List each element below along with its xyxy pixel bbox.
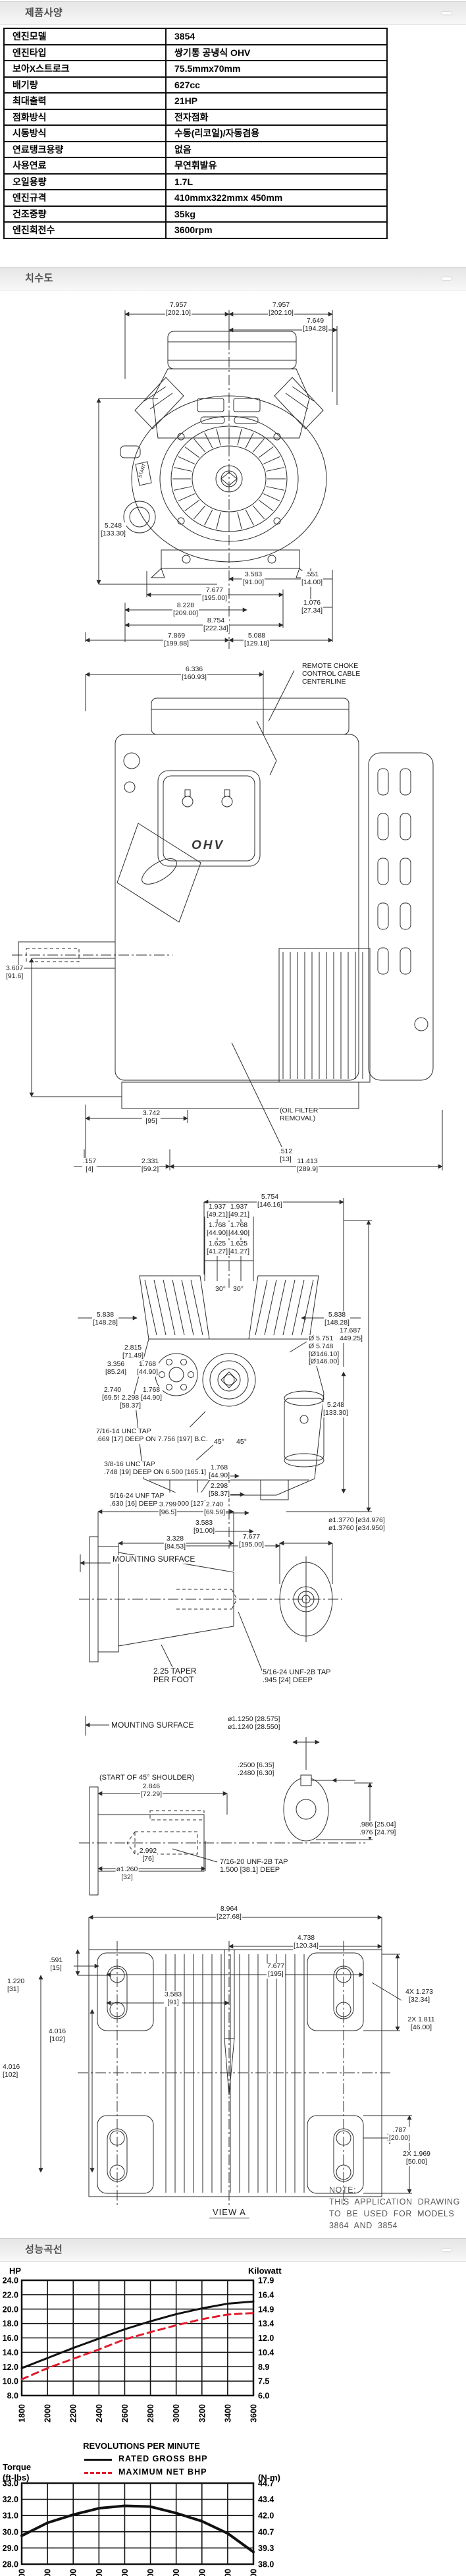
spec-row: 보아X스트로크75.5mmx70mm: [4, 61, 387, 77]
dimension-label: 8.964 [227.68]: [216, 1905, 242, 1921]
product-page: 제품사양 엔진모델3854엔진타입쌍기통 공냉식 OHV보아X스트로크75.5m…: [0, 0, 466, 2576]
dimension-label: 3.583 [91]: [164, 1991, 182, 2007]
spec-value: 35kg: [166, 206, 387, 223]
dimension-label: .591 [15]: [49, 1957, 63, 1973]
y2-axis-tick: 8.9: [258, 2363, 269, 2372]
y-axis-tick: 22.0: [3, 2290, 18, 2299]
dimension-label: 2.815 [71.49]: [122, 1344, 144, 1360]
dimension-label: 2X 1.969 [50.00]: [402, 2151, 431, 2166]
dimension-label: 17.687 [449.25]: [337, 1327, 363, 1343]
dimension-label: 4.016 [102]: [2, 2064, 20, 2079]
dimension-label: REMOTE CHOKE CONTROL CABLE CENTERLINE: [301, 663, 361, 686]
spec-row: 사용연료무연휘발유: [4, 157, 387, 174]
y2-axis-tick: 40.7: [258, 2527, 274, 2536]
y-axis-tick: 30.0: [3, 2527, 18, 2536]
dimension-label: 3.328 [84.53]: [164, 1535, 186, 1551]
section-title-specs: 제품사양: [25, 2, 63, 24]
x-axis-tick: 2600: [120, 2569, 130, 2576]
spec-row: 배기량627cc: [4, 77, 387, 94]
x-axis-tick: 3400: [223, 2404, 232, 2423]
dimension-label: .512 [13]: [278, 1148, 293, 1164]
y2-axis-tick: 42.0: [258, 2511, 274, 2521]
y2-axis-tick: 14.9: [258, 2305, 274, 2314]
x-axis-tick: 2000: [43, 2404, 53, 2423]
spec-row: 최대출력21HP: [4, 93, 387, 109]
dimension-label: 2.25 TAPER PER FOOT: [153, 1667, 197, 1685]
dimension-label: 3.356 [85.24]: [105, 1361, 127, 1377]
dimension-label: 7/16-20 UNF-2B TAP 1.500 [38.1] DEEP: [219, 1858, 289, 1875]
x-axis-tick: 3600: [249, 2404, 259, 2423]
dimension-label: 7.869 [199.88]: [163, 632, 190, 648]
y-axis-tick: 16.0: [3, 2334, 18, 2343]
spec-value: 무연휘발유: [166, 157, 387, 174]
y2-axis-tick: 17.9: [258, 2276, 274, 2286]
section-title-performance: 성능곡선: [25, 2239, 63, 2261]
torque-axis-unit: (ft-lbs): [3, 2473, 29, 2482]
y2-axis-tick: 6.0: [258, 2392, 269, 2401]
collapse-icon[interactable]: [442, 12, 452, 14]
y-axis-tick: 10.0: [3, 2377, 18, 2386]
dimension-drawing: 7.957 [202.10]7.957 [202.10]7.649 [194.2…: [0, 300, 466, 2236]
dimension-label: 8.754 [222.34]: [203, 617, 229, 633]
spec-row: 엔진규격410mmx322mmx 450mm: [4, 190, 387, 206]
legend-line-gross: [84, 2459, 112, 2461]
dimension-label: .157 [4]: [82, 1158, 97, 1174]
dimension-label: 7.677 [195]: [267, 1963, 285, 1979]
x-axis-tick: 3200: [197, 2569, 207, 2576]
legend-line-net: [84, 2472, 112, 2474]
spec-value: 627cc: [166, 77, 387, 94]
spec-label: 배기량: [4, 77, 166, 94]
spec-row: 건조중량35kg: [4, 206, 387, 223]
dimension-label: 7.649 [194.28]: [302, 317, 328, 333]
dimension-label: 1.625 [41.27]: [206, 1240, 228, 1256]
dimension-label: 5.248 [133.30]: [100, 522, 126, 538]
y-axis-tick: 20.0: [3, 2305, 18, 2314]
spec-label: 엔진회전수: [4, 222, 166, 238]
dimension-label: .986 [25.04] .976 [24.79]: [359, 1821, 396, 1837]
legend-label-net: MAXIMUM NET BHP: [118, 2467, 207, 2477]
spec-row: 연료탱크용량없음: [4, 142, 387, 158]
dimension-label: 7.957 [202.10]: [165, 302, 192, 317]
torque-axis-title: Torque: [3, 2462, 31, 2472]
spec-label: 엔진규격: [4, 190, 166, 206]
y-axis-tick: 12.0: [3, 2363, 18, 2372]
rpm-axis-label: REVOLUTIONS PER MINUTE: [69, 2441, 214, 2451]
y2-axis-tick: 39.3: [258, 2544, 274, 2553]
nm-axis-title: (N-m): [258, 2473, 280, 2482]
dimension-label: 7/16-14 UNC TAP .669 [17] DEEP ON 7.756 …: [95, 1428, 209, 1444]
x-axis-tick: 3000: [172, 2404, 181, 2423]
dimension-label: 1.768 [44.90]: [208, 1464, 230, 1480]
dimension-label: 1.076 [27.34]: [301, 599, 323, 615]
drawing-note: NOTE: THIS APPLICATION DRAWING TO BE USE…: [329, 2184, 460, 2232]
y2-axis-tick: 7.5: [258, 2377, 269, 2386]
x-axis-tick: 3200: [197, 2404, 207, 2423]
dimension-label: 2.992 [76]: [139, 1848, 157, 1863]
spec-label: 점화방식: [4, 109, 166, 126]
dimension-label: MOUNTING SURFACE: [111, 1721, 194, 1730]
dimension-label: 2.846 [72.29]: [140, 1783, 163, 1799]
spec-label: 연료탱크용량: [4, 142, 166, 158]
dimension-label: Ø 5.751 Ø 5.748 [Ø146.10] [Ø146.00]: [308, 1335, 340, 1366]
dimension-label: 3.742 [95]: [142, 1110, 161, 1126]
spec-value: 전자점화: [166, 109, 387, 126]
chart-1: 33.044.732.043.431.042.030.040.729.039.3…: [3, 2479, 274, 2576]
dimension-label: 5.838 [148.28]: [92, 1311, 118, 1327]
view-a-label: VIEW A: [209, 2207, 249, 2218]
dimension-label: 3.607 [91.6]: [5, 965, 24, 981]
dimension-label: .2500 [6.35] .2480 [6.30]: [237, 1762, 274, 1778]
dimension-label: (OIL FILTER REMOVAL): [279, 1107, 319, 1123]
spec-value: 쌍기통 공냉식 OHV: [166, 45, 387, 61]
dimension-label: 5.754 [146.16]: [257, 1193, 283, 1209]
spec-value: 3600rpm: [166, 222, 387, 238]
hp-axis-title: HP: [9, 2266, 21, 2276]
dimension-label: 1.937 [49.21]: [206, 1203, 228, 1219]
spec-value: 21HP: [166, 93, 387, 109]
dimension-label: 3.583 [91.00]: [193, 1520, 215, 1535]
spec-row: 엔진타입쌍기통 공냉식 OHV: [4, 45, 387, 61]
x-axis-tick: 3400: [223, 2569, 232, 2576]
x-axis-tick: 2200: [69, 2404, 78, 2423]
spec-row: 점화방식전자점화: [4, 109, 387, 126]
dimension-label: 5.248 [133.30]: [323, 1402, 349, 1417]
dimension-label: 30°: [232, 1286, 244, 1294]
y-axis-tick: 14.0: [3, 2348, 18, 2357]
legend-label-gross: RATED GROSS BHP: [118, 2454, 208, 2463]
dimension-label: 5.088 [129.18]: [244, 632, 270, 648]
x-axis-tick: 3000: [172, 2569, 181, 2576]
spec-label: 건조중량: [4, 206, 166, 223]
dimension-label: 2.298 [58.37]: [119, 1394, 142, 1410]
dimension-label: 1.768 [44.90]: [136, 1361, 159, 1377]
y2-axis-tick: 38.0: [258, 2560, 274, 2569]
y2-axis-tick: 43.4: [258, 2495, 274, 2504]
y2-axis-tick: 13.4: [258, 2319, 274, 2328]
x-axis-tick: 3600: [249, 2569, 259, 2576]
x-axis-tick: 1800: [18, 2404, 27, 2423]
spec-row: 엔진회전수3600rpm: [4, 222, 387, 238]
dimension-label: 3.799 [96.5]: [159, 1501, 177, 1517]
spec-row: 엔진모델3854: [4, 28, 387, 45]
dimension-label: 1.768 [44.90]: [206, 1222, 228, 1238]
x-axis-tick: 2800: [146, 2569, 155, 2576]
x-axis-tick: 2400: [95, 2569, 104, 2576]
dimension-label: 7.677 [195.00]: [238, 1533, 265, 1549]
y2-axis-tick: 10.4: [258, 2348, 274, 2357]
y2-axis-tick: 12.0: [258, 2334, 274, 2343]
chart-0: 24.017.922.016.420.014.918.013.416.012.0…: [3, 2276, 274, 2423]
spec-value: 수동(리코일)/자동겸용: [166, 125, 387, 142]
dimension-label: 6.336 [160.93]: [181, 666, 207, 682]
dimension-label: 2.740 [69.59]: [203, 1501, 226, 1517]
chart-series-torque: [22, 2506, 253, 2552]
dimension-label: 5/16-24 UNF-2B TAP .945 [24] DEEP: [262, 1668, 332, 1685]
y-axis-tick: 32.0: [3, 2495, 18, 2504]
dimension-label: 4X 1.273 [32.34]: [405, 1988, 434, 2004]
dimension-label: 1.937 [49.21]: [228, 1203, 250, 1219]
y-axis-tick: 8.0: [7, 2392, 18, 2401]
y2-axis-tick: 16.4: [258, 2290, 274, 2299]
x-axis-tick: 2400: [95, 2404, 104, 2423]
collapse-icon[interactable]: [442, 277, 452, 280]
y-axis-tick: 31.0: [3, 2511, 18, 2521]
performance-charts: 24.017.922.016.420.014.918.013.416.012.0…: [0, 2266, 466, 2576]
dimension-label: ø1.260 [32]: [116, 1866, 139, 1882]
collapse-icon[interactable]: [442, 2249, 452, 2251]
dimension-label: 2X 1.811 [46.00]: [407, 2016, 435, 2032]
x-axis-tick: 2800: [146, 2404, 155, 2423]
dimension-label: (START OF 45° SHOULDER): [99, 1774, 195, 1782]
dimension-label: 1.768 [44.90]: [140, 1386, 163, 1402]
spec-value: 1.7L: [166, 174, 387, 190]
section-header-performance: 성능곡선: [0, 2238, 466, 2262]
spec-label: 오일용량: [4, 174, 166, 190]
dimension-label: .551 [14.00]: [301, 571, 323, 587]
dimension-label: 45°: [236, 1439, 247, 1446]
spec-value: 없음: [166, 142, 387, 158]
spec-value: 3854: [166, 28, 387, 45]
engine-line-art: [0, 300, 466, 2236]
x-axis-tick: 1800: [18, 2569, 27, 2576]
dimension-label: 1.220 [31]: [7, 1978, 25, 1994]
dimension-label: ø1.1250 [28.575] ø1.1240 [28.550]: [227, 1716, 280, 1732]
y-axis-tick: 18.0: [3, 2319, 18, 2328]
dimension-label: .787 [20.00]: [388, 2127, 411, 2143]
spec-label: 엔진타입: [4, 45, 166, 61]
dimension-label: 4.016 [102]: [48, 2028, 66, 2044]
x-axis-tick: 2000: [43, 2569, 53, 2576]
y-axis-tick: 29.0: [3, 2544, 18, 2553]
ohv-badge: OHV: [192, 838, 224, 853]
x-axis-tick: 2600: [120, 2404, 130, 2423]
spec-label: 시동방식: [4, 125, 166, 142]
spec-label: 사용연료: [4, 157, 166, 174]
dimension-label: ø1.3770 [ø34.976] ø1.3760 [ø34.950]: [328, 1517, 386, 1533]
dimension-label: 3.583 [91.00]: [242, 571, 265, 587]
dimension-label: MOUNTING SURFACE: [112, 1555, 195, 1564]
dimension-label: 7.677 [195.00]: [201, 587, 228, 603]
section-title-dimensions: 치수도: [25, 267, 53, 290]
dimension-label: 1.768 [44.90]: [228, 1222, 250, 1238]
spec-row: 시동방식수동(리코일)/자동겸용: [4, 125, 387, 142]
x-axis-tick: 2200: [69, 2569, 78, 2576]
charts-canvas: 24.017.922.016.420.014.918.013.416.012.0…: [0, 2266, 466, 2576]
dimension-label: 30°: [215, 1286, 226, 1294]
spec-label: 보아X스트로크: [4, 61, 166, 77]
dimension-label: 2.298 [58.37]: [208, 1483, 230, 1498]
dimension-label: 1.625 [41.27]: [228, 1240, 250, 1256]
dimension-label: 45°: [213, 1439, 225, 1446]
dimension-label: 3/8-16 UNC TAP .748 [19] DEEP ON 6.500 […: [103, 1461, 222, 1477]
section-header-specs: 제품사양: [0, 1, 466, 25]
dimension-label: 11.413 [289.9]: [296, 1158, 319, 1174]
kilowatt-axis-title: Kilowatt: [248, 2266, 282, 2276]
dimension-label: 8.228 [209.00]: [172, 602, 199, 618]
spec-value: 410mmx322mmx 450mm: [166, 190, 387, 206]
y-axis-tick: 28.0: [3, 2560, 18, 2569]
dimension-label: 7.957 [202.10]: [268, 302, 294, 317]
section-header-dimensions: 치수도: [0, 267, 466, 290]
spec-label: 최대출력: [4, 93, 166, 109]
spec-table: 엔진모델3854엔진타입쌍기통 공냉식 OHV보아X스트로크75.5mmx70m…: [3, 28, 388, 239]
dimension-label: 4.738 [120.34]: [293, 1934, 319, 1950]
dimension-label: 2.331 [59.2]: [141, 1158, 159, 1174]
spec-label: 엔진모델: [4, 28, 166, 45]
spec-value: 75.5mmx70mm: [166, 61, 387, 77]
y-axis-tick: 24.0: [3, 2276, 18, 2286]
spec-row: 오일용량1.7L: [4, 174, 387, 190]
dimension-label: 5.838 [148.28]: [324, 1311, 350, 1327]
